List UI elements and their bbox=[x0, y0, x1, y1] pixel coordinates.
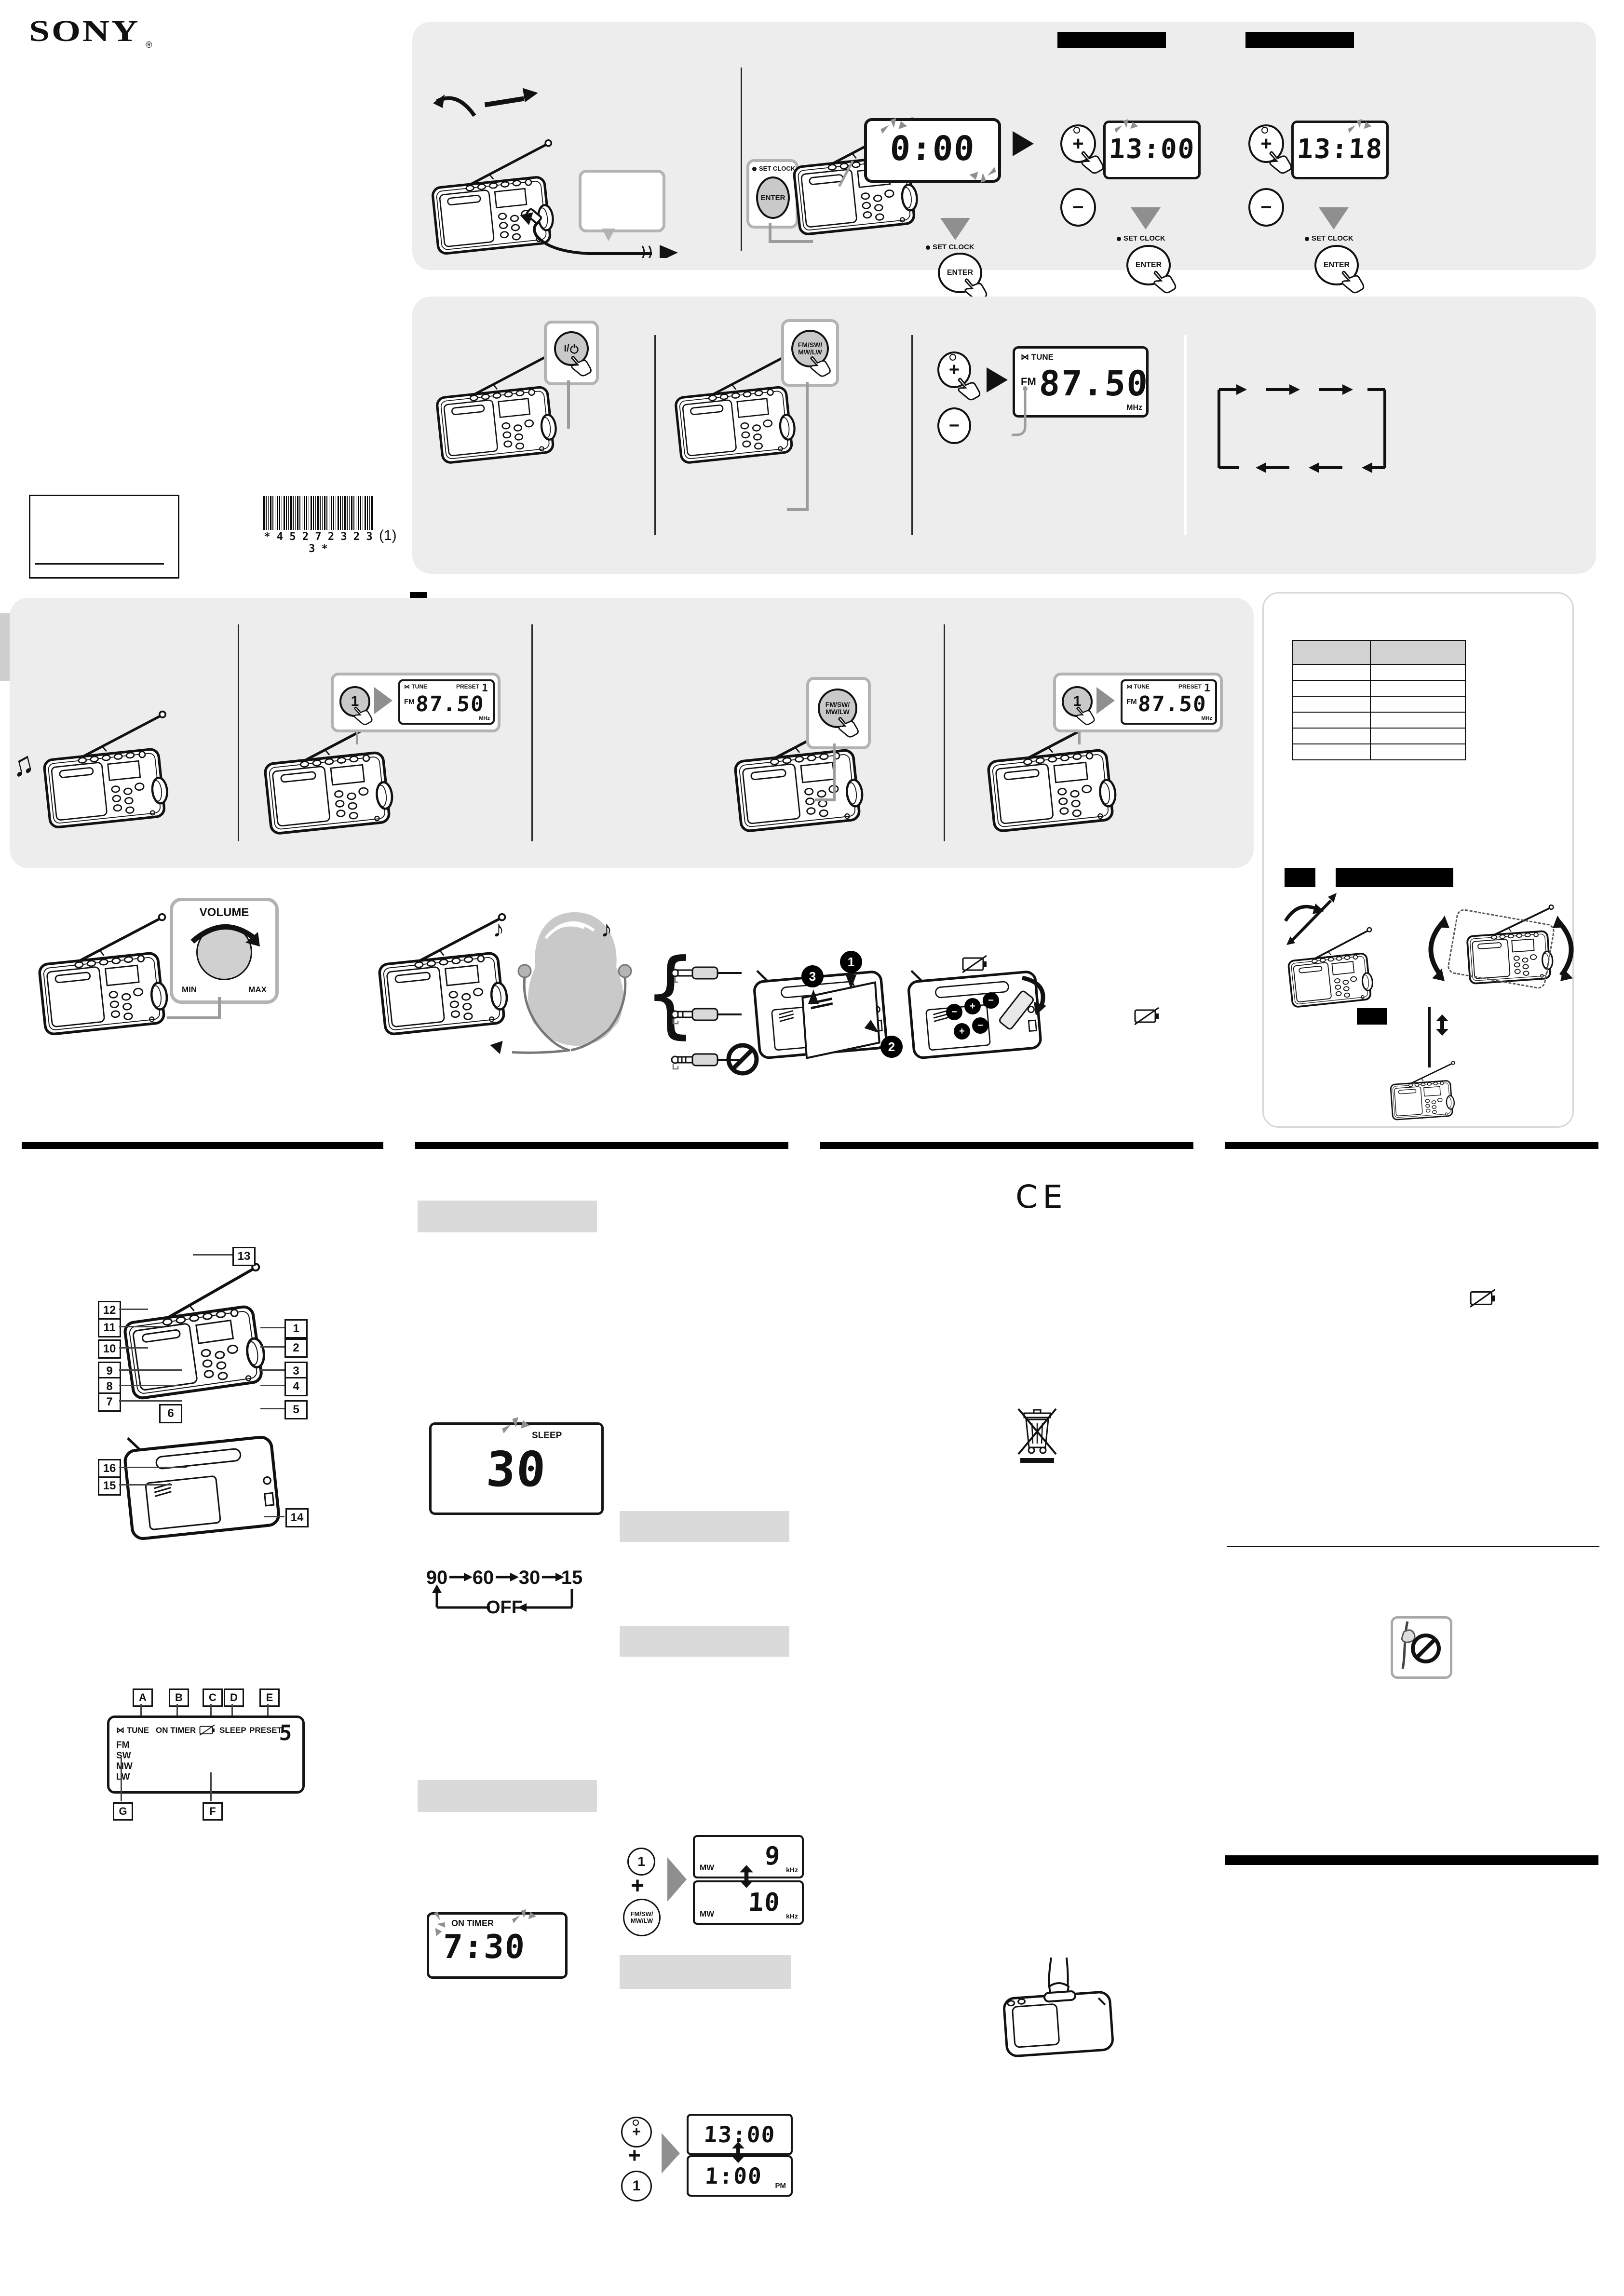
weee-bin-icon bbox=[1015, 1406, 1058, 1465]
one-label: 1 bbox=[633, 2178, 641, 2194]
sleep-value: 30 bbox=[430, 1441, 603, 1498]
music-note-icon: ♪ bbox=[601, 916, 612, 943]
band-label: MW bbox=[116, 1761, 133, 1772]
listener-silhouette bbox=[512, 909, 637, 1059]
registered-mark: ® bbox=[146, 40, 152, 50]
result-arrow-icon bbox=[667, 1857, 687, 1902]
table-header-cell bbox=[1293, 640, 1370, 664]
callout-15: 15 bbox=[98, 1476, 121, 1496]
panel-divider bbox=[654, 335, 656, 535]
tune-indicator-icon: ⋈ bbox=[404, 683, 410, 690]
sleep-timer-section-header bbox=[418, 1201, 597, 1232]
band-label: SW bbox=[116, 1751, 133, 1761]
mw-label: MW bbox=[700, 1909, 714, 1919]
callout-11: 11 bbox=[98, 1318, 121, 1337]
leader-line bbox=[833, 743, 836, 801]
then-arrow-icon bbox=[1131, 207, 1161, 230]
battery-empty-icon bbox=[1134, 1006, 1160, 1026]
callout-B-label: B bbox=[175, 1691, 183, 1704]
note-header-bar bbox=[1357, 1008, 1387, 1025]
callout-6-label: 6 bbox=[167, 1407, 174, 1420]
mw-label: MW bbox=[700, 1863, 714, 1873]
minute-set-display: 13:18 bbox=[1291, 121, 1389, 179]
step-3-arrow-icon bbox=[808, 989, 819, 1004]
minus-button: − bbox=[1248, 188, 1284, 227]
antenna-adjust-arrows-icon bbox=[1278, 892, 1340, 945]
callout-leader bbox=[260, 1385, 284, 1386]
leader-line bbox=[567, 380, 570, 429]
section-rule bbox=[820, 1142, 1193, 1149]
extend-antenna-arrowhead-icon bbox=[523, 86, 539, 102]
callout-leader bbox=[140, 1704, 142, 1715]
enter-label: ENTER bbox=[761, 194, 785, 202]
callout-leader bbox=[267, 1704, 269, 1715]
table-cell bbox=[1370, 728, 1465, 744]
vertical-antenna bbox=[1428, 1007, 1431, 1067]
plus-label: + bbox=[949, 360, 960, 380]
then-arrow-icon bbox=[1319, 207, 1349, 230]
table-cell bbox=[1293, 696, 1370, 712]
display-callout-G: G bbox=[113, 1802, 133, 1821]
leader-line bbox=[806, 382, 809, 511]
cycle-60: 60 bbox=[473, 1567, 494, 1588]
plus-sign: + bbox=[631, 1873, 644, 1899]
minus-label: − bbox=[1072, 197, 1083, 218]
battery-empty-icon bbox=[962, 954, 988, 974]
sleep-label: SLEEP bbox=[219, 1726, 246, 1735]
band-button-callout: FM/SW/ MW/LW bbox=[806, 677, 871, 749]
next-step-arrow-icon bbox=[1013, 131, 1034, 156]
callout-7: 7 bbox=[98, 1392, 121, 1412]
plug-group-bracket: { bbox=[644, 939, 696, 1049]
panel-divider bbox=[944, 624, 945, 841]
khz-label: kHz bbox=[786, 1866, 798, 1874]
sleep-display: SLEEP 30 bbox=[429, 1422, 604, 1515]
callout-6: 6 bbox=[159, 1404, 182, 1423]
sony-logo-text: SONY bbox=[29, 14, 140, 49]
minus-button: − bbox=[937, 407, 971, 444]
tune-indicator-icon: ⋈ bbox=[116, 1726, 124, 1735]
cycle-off: OFF bbox=[486, 1597, 523, 1618]
callout-15-label: 15 bbox=[103, 1479, 116, 1493]
tune-label: TUNE bbox=[1031, 352, 1054, 362]
time-display-section-header bbox=[620, 1955, 791, 1989]
callout-1: 1 bbox=[284, 1319, 308, 1338]
on-timer-label: ON TIMER bbox=[451, 1918, 494, 1929]
flash-icon bbox=[502, 1417, 531, 1435]
set-clock-label: SET CLOCK bbox=[1312, 234, 1353, 243]
rotate-arrow-icon bbox=[1416, 914, 1449, 986]
callout-16: 16 bbox=[98, 1459, 121, 1478]
panel-divider bbox=[911, 335, 913, 535]
power-cord bbox=[521, 207, 680, 258]
frequency-display: ⋈ TUNE FM 87.50 MHz bbox=[1013, 346, 1149, 418]
callout-leader bbox=[260, 1369, 284, 1371]
battery-plus-mark: + bbox=[954, 1023, 970, 1040]
channel-step-section-header bbox=[620, 1626, 789, 1657]
cycle-15: 15 bbox=[561, 1567, 583, 1588]
reception-section-header bbox=[620, 1511, 789, 1542]
band-label-1: FM/SW/ bbox=[631, 1910, 653, 1918]
band-fm-label: FM bbox=[1126, 698, 1137, 706]
band-cycle-diagram bbox=[1205, 366, 1398, 501]
minute-set-value: 13:18 bbox=[1293, 134, 1387, 165]
panel-divider bbox=[531, 624, 533, 841]
tune-label: TUNE bbox=[1134, 683, 1150, 690]
frequency-value: 87.50 bbox=[1137, 692, 1207, 716]
toggle-updown-arrow-icon bbox=[732, 2142, 744, 2163]
preset-store-callout: 1 ⋈ TUNE PRESET 1 FM 87.50 MHz bbox=[331, 673, 501, 732]
dot-icon bbox=[752, 167, 757, 171]
clock-initial-value: 0:00 bbox=[866, 129, 999, 168]
mw-lw-header-bar bbox=[1336, 868, 1453, 887]
dot-icon bbox=[1117, 237, 1121, 241]
step-3-label: 3 bbox=[809, 969, 816, 984]
barcode-digits: * 4 5 2 7 2 3 2 3 3 * bbox=[260, 531, 376, 555]
flash-icon bbox=[1114, 119, 1139, 135]
callout-7-label: 7 bbox=[106, 1395, 112, 1409]
section-end-rule bbox=[1225, 1855, 1598, 1865]
callout-leader bbox=[260, 1408, 284, 1409]
sleep-cycle-diagram: 90 60 30 15 OFF bbox=[419, 1561, 607, 1619]
band-button: FM/SW/ MW/LW bbox=[623, 1899, 661, 1936]
callout-leader bbox=[264, 1516, 284, 1517]
carrying-radio-figure bbox=[979, 1958, 1138, 2071]
on-timer-value: 7:30 bbox=[442, 1928, 527, 1966]
time-12h-value: 1:00 bbox=[704, 2163, 763, 2189]
dot-icon bbox=[926, 245, 930, 250]
leader-line bbox=[167, 1016, 221, 1019]
do-not-pull-antenna-icon bbox=[1391, 1616, 1452, 1679]
music-note-icon: ♪ bbox=[493, 916, 504, 943]
table-cell bbox=[1293, 712, 1370, 728]
callout-10-label: 10 bbox=[103, 1342, 116, 1356]
display-callout-E: E bbox=[259, 1688, 280, 1707]
callout-leader bbox=[119, 1385, 182, 1386]
cycle-30: 30 bbox=[519, 1567, 541, 1588]
band-fm-label: FM bbox=[404, 698, 415, 706]
tune-indicator-icon: ⋈ bbox=[1021, 352, 1029, 362]
battery-minus-mark: − bbox=[946, 1004, 962, 1020]
callout-5: 5 bbox=[284, 1400, 308, 1419]
hour-set-display: 13:00 bbox=[1103, 121, 1201, 179]
display-callout-B: B bbox=[169, 1688, 189, 1707]
callout-G-label: G bbox=[119, 1805, 127, 1818]
hold-dot-icon bbox=[1073, 127, 1080, 134]
callout-9-label: 9 bbox=[106, 1364, 112, 1378]
plus-sign: + bbox=[628, 2144, 641, 2168]
callout-leader bbox=[119, 1347, 148, 1349]
radio-front-diagram bbox=[111, 1246, 286, 1425]
step-3-marker: 3 bbox=[801, 965, 824, 987]
leader-line bbox=[815, 798, 836, 801]
step-2-label: 2 bbox=[888, 1040, 895, 1054]
column-divider-line bbox=[1227, 1546, 1599, 1547]
callout-leader bbox=[119, 1369, 182, 1371]
radio-illustration bbox=[1383, 1060, 1466, 1125]
callout-16-label: 16 bbox=[103, 1462, 116, 1475]
preset-label: PRESET bbox=[456, 683, 479, 690]
khz-label: kHz bbox=[786, 1912, 798, 1920]
band-label: LW bbox=[116, 1772, 133, 1783]
enter-label: ENTER bbox=[1324, 261, 1350, 270]
callout-A-label: A bbox=[139, 1691, 147, 1704]
table-cell bbox=[1370, 744, 1465, 760]
battery-icon bbox=[199, 1724, 216, 1736]
callout-11-label: 11 bbox=[103, 1321, 115, 1335]
max-label: MAX bbox=[248, 985, 267, 995]
callout-2: 2 bbox=[284, 1338, 308, 1358]
step-header-bar bbox=[1057, 32, 1166, 48]
section-rule bbox=[415, 1142, 788, 1149]
radio-illustration bbox=[30, 911, 185, 1046]
table-cell bbox=[1293, 680, 1370, 696]
panel-divider bbox=[238, 624, 239, 841]
step-1-label: 1 bbox=[848, 955, 854, 970]
result-arrow-icon bbox=[662, 2133, 680, 2174]
callout-leader bbox=[210, 1704, 212, 1715]
callout-leader bbox=[121, 1758, 122, 1801]
enter-label: ENTER bbox=[1136, 261, 1162, 270]
display-callout-C: C bbox=[203, 1688, 223, 1707]
pm-label: PM bbox=[775, 2182, 786, 2190]
band-label-1: FM/SW/ bbox=[798, 341, 823, 349]
preset-5-value: 5 bbox=[279, 1721, 294, 1745]
display-diagram: ⋈ TUNE ON TIMER SLEEP PRESET 5 FM SW MW … bbox=[107, 1715, 305, 1794]
prohibited-icon bbox=[726, 1042, 759, 1076]
step-1-arrow-icon bbox=[846, 975, 856, 989]
callout-14: 14 bbox=[285, 1508, 309, 1527]
power-icon bbox=[569, 343, 579, 354]
callout-12-label: 12 bbox=[103, 1304, 116, 1317]
on-timer-label: ON TIMER bbox=[156, 1726, 196, 1735]
fm-header-bar bbox=[1285, 868, 1315, 887]
callout-leader bbox=[260, 1346, 284, 1348]
tune-indicator-icon: ⋈ bbox=[1126, 683, 1132, 690]
insert-battery-arrow-icon bbox=[1013, 974, 1051, 1017]
minus-label: − bbox=[1260, 197, 1272, 218]
enter-label: ENTER bbox=[947, 269, 973, 277]
dot-icon bbox=[1305, 237, 1309, 241]
sony-logo: SONY® bbox=[29, 14, 124, 49]
preset-label: PRESET bbox=[1178, 683, 1202, 690]
battery-minus-mark: − bbox=[972, 1017, 988, 1034]
band-label-2: MW/LW bbox=[631, 1917, 653, 1924]
result-arrow-icon bbox=[987, 367, 1008, 392]
flash-icon bbox=[1348, 119, 1373, 135]
stereo-plug-icon bbox=[671, 1006, 744, 1027]
callout-C-label: C bbox=[209, 1691, 217, 1704]
ce-mark: CE bbox=[1015, 1178, 1068, 1216]
display-callout-D: D bbox=[224, 1688, 244, 1707]
table-cell bbox=[1293, 664, 1370, 680]
hold-dot-icon bbox=[633, 2120, 639, 2126]
result-arrow-icon bbox=[1096, 687, 1115, 714]
display-callout-F: F bbox=[203, 1802, 223, 1821]
panel-divider bbox=[741, 68, 742, 251]
callout-5-label: 5 bbox=[293, 1403, 299, 1417]
barcode-suffix: (1) bbox=[379, 527, 397, 544]
table-cell bbox=[1370, 696, 1465, 712]
callout-4-label: 4 bbox=[293, 1380, 299, 1393]
turn-knob-arrow-icon bbox=[188, 914, 260, 947]
model-box-line bbox=[35, 563, 164, 565]
volume-callout: VOLUME MIN MAX bbox=[170, 898, 279, 1004]
mhz-label: MHz bbox=[1126, 404, 1142, 412]
clock-initial-display: 0:00 bbox=[864, 118, 1001, 183]
then-arrow-icon bbox=[940, 218, 970, 240]
table-header-cell bbox=[1370, 640, 1465, 664]
step-10-value: 10 bbox=[748, 1888, 782, 1917]
barcode bbox=[263, 496, 373, 530]
power-button-callout: I/ bbox=[544, 321, 599, 385]
callout-leader bbox=[119, 1400, 182, 1402]
panel-divider bbox=[1184, 335, 1187, 535]
sleep-label: SLEEP bbox=[532, 1431, 562, 1441]
callout-D-label: D bbox=[230, 1691, 238, 1704]
preset-1-button: 1 bbox=[621, 2171, 652, 2201]
toggle-updown-arrow-icon bbox=[740, 1865, 753, 1888]
preset-display: ⋈ TUNE PRESET 1 FM 87.50 MHz bbox=[398, 679, 495, 725]
result-arrow-icon bbox=[374, 687, 392, 714]
manual-page: SONY® * 4 5 2 7 2 3 2 3 3 * (1) SET CLOC… bbox=[0, 0, 1624, 2296]
callout-10: 10 bbox=[98, 1339, 121, 1359]
callout-leader bbox=[210, 1772, 212, 1801]
mhz-label: MHz bbox=[1201, 716, 1212, 721]
callout-leader bbox=[119, 1484, 172, 1486]
plug-in-arrow-icon bbox=[488, 1039, 502, 1054]
callout-leader bbox=[119, 1467, 187, 1468]
callout-13: 13 bbox=[232, 1247, 256, 1266]
band-label-1: FM/SW/ bbox=[826, 701, 850, 708]
leader-line bbox=[787, 508, 809, 511]
extend-updown-arrow-icon bbox=[1436, 1011, 1448, 1040]
callout-leader bbox=[260, 1327, 284, 1328]
table-cell bbox=[1293, 744, 1370, 760]
callout-12: 12 bbox=[98, 1301, 121, 1320]
display-callout-A: A bbox=[133, 1688, 153, 1707]
battery-plus-mark: + bbox=[964, 998, 981, 1014]
set-clock-label: SET CLOCK bbox=[933, 243, 974, 251]
table-cell bbox=[1370, 664, 1465, 680]
callout-F-label: F bbox=[209, 1805, 216, 1818]
hold-dot-icon bbox=[949, 354, 956, 361]
power-label: I/ bbox=[564, 343, 569, 354]
table-cell bbox=[1370, 680, 1465, 696]
enter-button: ENTER bbox=[756, 176, 790, 219]
step-9-value: 9 bbox=[764, 1842, 781, 1871]
rotate-antenna-arrow-icon bbox=[428, 87, 481, 130]
callout-leader bbox=[176, 1704, 178, 1715]
preset-display: ⋈ TUNE PRESET 1 FM 87.50 MHz bbox=[1121, 679, 1217, 725]
battery-minus-mark: − bbox=[983, 992, 999, 1009]
callout-leader bbox=[193, 1254, 232, 1256]
step-header-bar bbox=[1245, 32, 1354, 48]
callout-8-label: 8 bbox=[106, 1380, 112, 1393]
table-cell bbox=[1293, 728, 1370, 744]
callout-14-label: 14 bbox=[291, 1511, 304, 1525]
frequency-value: 87.50 bbox=[415, 692, 485, 716]
on-timer-section-header bbox=[418, 1780, 597, 1812]
on-timer-display: ON TIMER 7:30 bbox=[427, 1912, 568, 1979]
callout-13-label: 13 bbox=[238, 1250, 251, 1263]
fm-pointer-line bbox=[1011, 386, 1032, 440]
callout-4: 4 bbox=[284, 1377, 308, 1396]
one-label: 1 bbox=[637, 1854, 645, 1869]
tune-label: TUNE bbox=[411, 683, 427, 690]
section-rule bbox=[22, 1142, 383, 1149]
table-cell bbox=[1370, 712, 1465, 728]
callout-1-label: 1 bbox=[293, 1322, 299, 1336]
plus-label: + bbox=[632, 2124, 641, 2140]
preset-1-button: 1 bbox=[627, 1848, 655, 1876]
flash-icon bbox=[512, 1909, 537, 1925]
hold-dot-icon bbox=[1261, 127, 1268, 134]
step-1-marker: 1 bbox=[840, 951, 862, 973]
preset-recall-callout: 1 ⋈ TUNE PRESET 1 FM 87.50 MHz bbox=[1053, 673, 1223, 732]
battery-empty-icon bbox=[1470, 1287, 1497, 1309]
section-rule bbox=[1225, 1142, 1598, 1149]
preset-label: PRESET bbox=[249, 1726, 282, 1735]
band-table bbox=[1292, 640, 1466, 760]
minus-button: − bbox=[1060, 188, 1096, 227]
model-box bbox=[29, 495, 179, 579]
callout-leader bbox=[231, 1704, 233, 1715]
callout-leader bbox=[119, 1309, 148, 1310]
callout-3-label: 3 bbox=[293, 1364, 299, 1378]
rotate-arrow-icon bbox=[1553, 914, 1586, 986]
frequency-value: 87.50 bbox=[1038, 363, 1150, 404]
band-label: FM bbox=[116, 1740, 133, 1751]
minus-label: − bbox=[949, 416, 960, 436]
mono-plug-icon bbox=[671, 964, 744, 986]
callout-E-label: E bbox=[266, 1691, 273, 1704]
tune-label: TUNE bbox=[127, 1726, 149, 1735]
callout-2-label: 2 bbox=[293, 1341, 299, 1355]
band-button-callout: FM/SW/ MW/LW bbox=[781, 319, 839, 387]
flash-icon bbox=[968, 165, 996, 183]
hour-set-value: 13:00 bbox=[1105, 134, 1199, 165]
leader-line bbox=[769, 223, 771, 242]
mhz-label: MHz bbox=[479, 716, 490, 721]
min-label: MIN bbox=[182, 985, 197, 995]
radio-illustration bbox=[35, 709, 184, 838]
callout-leader bbox=[119, 1326, 162, 1327]
set-clock-label: SET CLOCK bbox=[1123, 234, 1165, 243]
step-2-marker: 2 bbox=[880, 1036, 903, 1058]
